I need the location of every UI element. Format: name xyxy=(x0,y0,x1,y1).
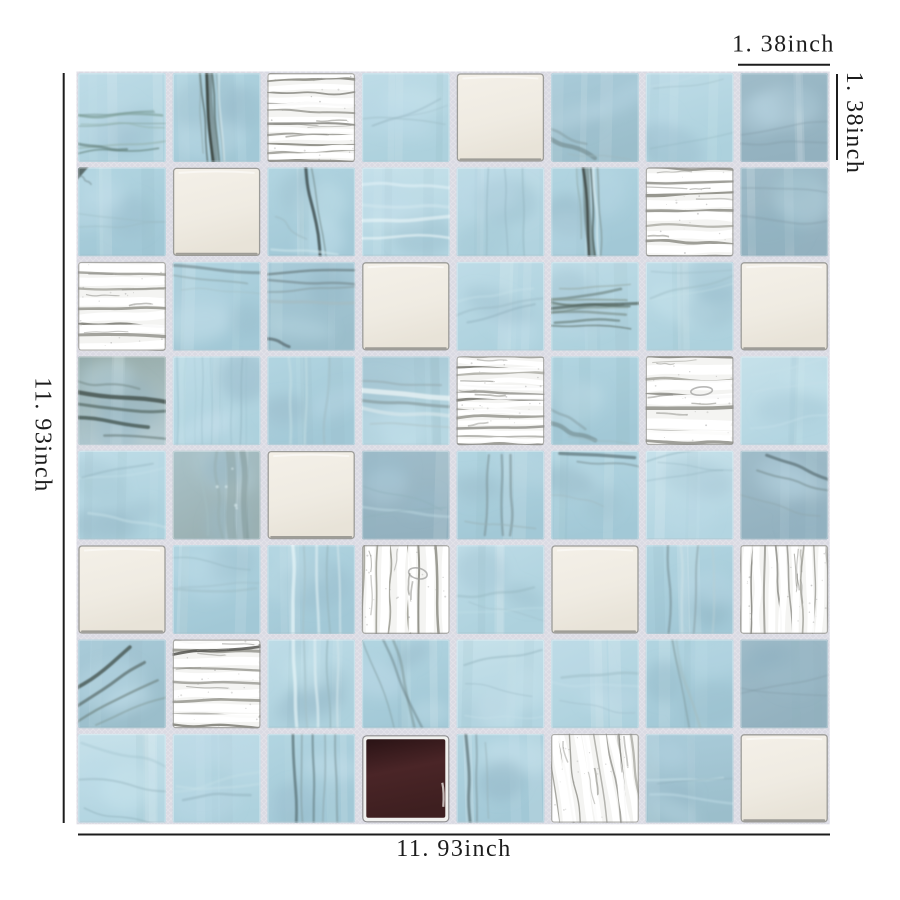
svg-text:1. 38inch: 1. 38inch xyxy=(732,31,835,57)
svg-text:1. 38inch: 1. 38inch xyxy=(841,72,867,175)
svg-text:11. 93inch: 11. 93inch xyxy=(396,836,511,862)
svg-text:11. 93inch: 11. 93inch xyxy=(30,377,56,492)
